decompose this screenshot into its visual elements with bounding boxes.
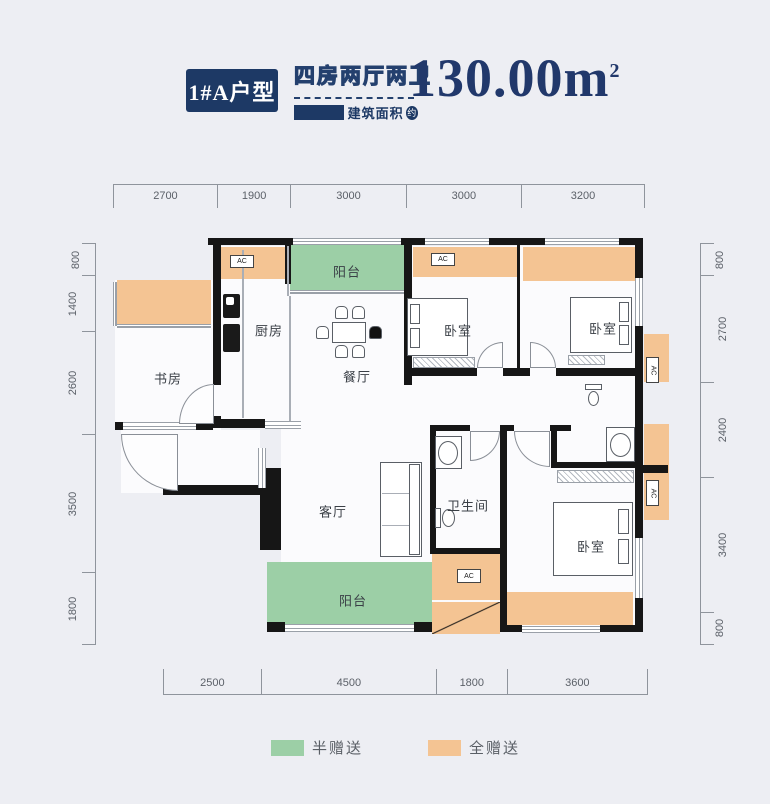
dimension-chain-top: 27001900300030003200 <box>113 184 645 208</box>
pillow <box>619 325 629 345</box>
room-label-dining-room: 餐厅 <box>343 367 371 386</box>
full-gift-label: 全赠送 <box>469 737 520 758</box>
sofa-seam <box>382 525 409 526</box>
dimension-segment-top: 3000 <box>406 185 521 208</box>
ac-unit-label: AC <box>649 365 656 375</box>
wall-segment <box>115 422 123 430</box>
dimension-value: 2500 <box>200 677 224 689</box>
dimension-value: 1900 <box>242 190 266 202</box>
wall-segment <box>635 465 668 473</box>
floorplan-drawing: ACACACACAC书房厨房阳台餐厅卧室卧室客厅卫生间卧室阳台 <box>113 238 669 638</box>
ac-unit-label: AC <box>237 258 247 265</box>
wall-segment <box>163 485 263 495</box>
dimension-value: 2600 <box>67 371 79 395</box>
partition-line <box>289 296 291 425</box>
toilet-tank <box>585 384 602 390</box>
balcony-rail <box>290 290 404 294</box>
dimension-segment-bottom: 2500 <box>163 669 261 694</box>
wardrobe-hatch <box>557 470 634 483</box>
dining-chair <box>335 345 348 358</box>
dimension-value: 2700 <box>717 317 729 341</box>
dimension-chain-right: 800270024003400800 <box>700 243 714 645</box>
gift-zone-bedroom3 <box>507 592 633 625</box>
window <box>265 421 301 429</box>
dimension-segment-bottom: 4500 <box>261 669 436 694</box>
gift-zone-bedroom2 <box>523 247 636 281</box>
dimension-value: 3000 <box>336 190 360 202</box>
dimension-segment-top: 3200 <box>521 185 645 208</box>
wall-segment <box>517 245 520 368</box>
legend-item-full-gift: 全赠送 <box>428 737 520 758</box>
fridge-icon <box>223 324 240 352</box>
wall-segment <box>267 622 285 632</box>
room-label-balcony-top: 阳台 <box>333 262 361 281</box>
room-label-kitchen: 厨房 <box>255 321 283 340</box>
window <box>258 448 266 488</box>
pillow <box>618 509 629 534</box>
area-number: 130.00m <box>409 48 609 108</box>
pillow <box>410 304 420 324</box>
wall-segment <box>430 548 507 554</box>
dimension-segment-right: 2400 <box>701 382 714 477</box>
dimension-value: 3000 <box>452 190 476 202</box>
half-gift-swatch <box>271 740 304 756</box>
dimension-value: 2400 <box>717 418 729 442</box>
sink-basin <box>610 433 631 457</box>
layout-type-text: 四房两厅两卫 <box>294 60 418 90</box>
dimension-segment-right: 2700 <box>701 275 714 382</box>
dimension-value: 4500 <box>337 677 361 689</box>
window <box>635 538 643 598</box>
dimension-segment-left: 3500 <box>82 434 95 572</box>
ac-unit-icon: AC <box>230 255 254 268</box>
sink-basin <box>438 441 458 465</box>
dimension-value: 1800 <box>67 596 79 620</box>
window <box>113 282 117 326</box>
dimension-value: 800 <box>714 619 726 637</box>
area-bar-decor <box>294 105 344 120</box>
dining-chair <box>316 326 329 339</box>
wall-segment <box>404 368 477 376</box>
room-label-bedroom-3: 卧室 <box>577 537 605 556</box>
ac-unit-icon: AC <box>457 569 481 583</box>
dimension-chain-bottom: 2500450018003600 <box>163 669 648 695</box>
wall-segment <box>500 554 507 632</box>
dimension-value: 3600 <box>565 677 589 689</box>
wall-segment <box>500 425 507 554</box>
dimension-segment-right: 800 <box>701 612 714 645</box>
dimension-value: 1400 <box>67 292 79 316</box>
dimension-value: 3500 <box>67 492 79 516</box>
room-label-bedroom-2: 卧室 <box>589 319 617 338</box>
full-gift-swatch <box>428 740 461 756</box>
ac-unit-label: AC <box>438 256 448 263</box>
room-label-living-room: 客厅 <box>319 502 347 521</box>
dining-chair <box>352 306 365 319</box>
dimension-value: 2700 <box>153 190 177 202</box>
ac-unit-label: AC <box>649 488 656 498</box>
window <box>285 624 414 632</box>
corner-diagonal <box>432 602 500 634</box>
wall-segment <box>600 625 635 632</box>
pillow <box>619 302 629 322</box>
dimension-value: 3200 <box>571 190 595 202</box>
ac-unit-label: AC <box>464 573 474 580</box>
unit-name-badge: 1#A户型 <box>186 69 278 112</box>
ac-unit-icon: AC <box>646 480 659 506</box>
wall-segment <box>556 368 635 376</box>
area-label: 建筑面积 <box>348 103 404 122</box>
dimension-value: 3400 <box>717 533 729 557</box>
dining-chair <box>369 326 382 339</box>
window <box>635 278 643 326</box>
dining-table <box>332 322 366 343</box>
window <box>425 238 489 245</box>
area-row: 建筑面积 约 <box>294 103 418 122</box>
dining-chair <box>352 345 365 358</box>
dimension-segment-left: 800 <box>82 243 95 275</box>
toilet-tank <box>435 508 441 528</box>
wardrobe-hatch <box>413 357 475 368</box>
pillow <box>410 328 420 348</box>
dimension-segment-left: 1400 <box>82 275 95 331</box>
dining-chair <box>335 306 348 319</box>
window <box>293 238 401 245</box>
window-sill <box>117 324 211 328</box>
room-label-bedroom-1: 卧室 <box>444 321 472 340</box>
wall-segment <box>213 238 221 385</box>
half-gift-label: 半赠送 <box>312 737 363 758</box>
sofa-back <box>409 464 420 555</box>
header-middle-block: 四房两厅两卫 建筑面积 约 <box>294 60 418 122</box>
dimension-segment-left: 1800 <box>82 572 95 645</box>
wall-segment <box>213 419 265 428</box>
legend-item-half-gift: 半赠送 <box>271 737 363 758</box>
room-label-study: 书房 <box>154 369 182 388</box>
toilet-bowl <box>588 391 599 406</box>
dimension-segment-right: 3400 <box>701 477 714 611</box>
pillow <box>618 539 629 564</box>
wall-segment <box>414 622 432 632</box>
wall-segment <box>503 368 530 376</box>
gift-zone-study <box>117 280 211 326</box>
wardrobe-hatch <box>568 355 605 365</box>
room-label-balcony-bottom: 阳台 <box>339 591 367 610</box>
ac-unit-icon: AC <box>646 357 659 383</box>
dimension-segment-left: 2600 <box>82 331 95 434</box>
partition-line <box>242 250 244 418</box>
sofa-seam <box>382 493 409 494</box>
area-superscript: 2 <box>609 60 620 82</box>
partition-line <box>287 246 289 296</box>
wall-segment <box>430 425 470 431</box>
floorplan-page: 1#A户型 四房两厅两卫 建筑面积 约 130.00m2 27001900300… <box>0 0 770 804</box>
window <box>545 238 619 245</box>
stove-icon <box>223 294 240 318</box>
dimension-segment-top: 3000 <box>290 185 405 208</box>
wall-segment <box>551 462 635 468</box>
room-label-bathroom: 卫生间 <box>447 496 489 515</box>
dimension-value: 800 <box>70 250 82 268</box>
dimension-segment-bottom: 1800 <box>436 669 507 694</box>
dashed-divider <box>294 97 414 99</box>
dimension-segment-right: 800 <box>701 243 714 275</box>
dimension-value: 800 <box>714 250 726 268</box>
dimension-segment-top: 2700 <box>113 185 217 208</box>
gift-zone-bedroom1 <box>413 247 517 277</box>
dimension-segment-bottom: 3600 <box>507 669 648 694</box>
dimension-value: 1800 <box>460 677 484 689</box>
area-value: 130.00m2 <box>409 47 620 109</box>
dimension-chain-left: 8001400260035001800 <box>82 243 96 645</box>
dimension-segment-top: 1900 <box>217 185 290 208</box>
window <box>522 626 600 633</box>
ac-unit-icon: AC <box>431 253 455 266</box>
